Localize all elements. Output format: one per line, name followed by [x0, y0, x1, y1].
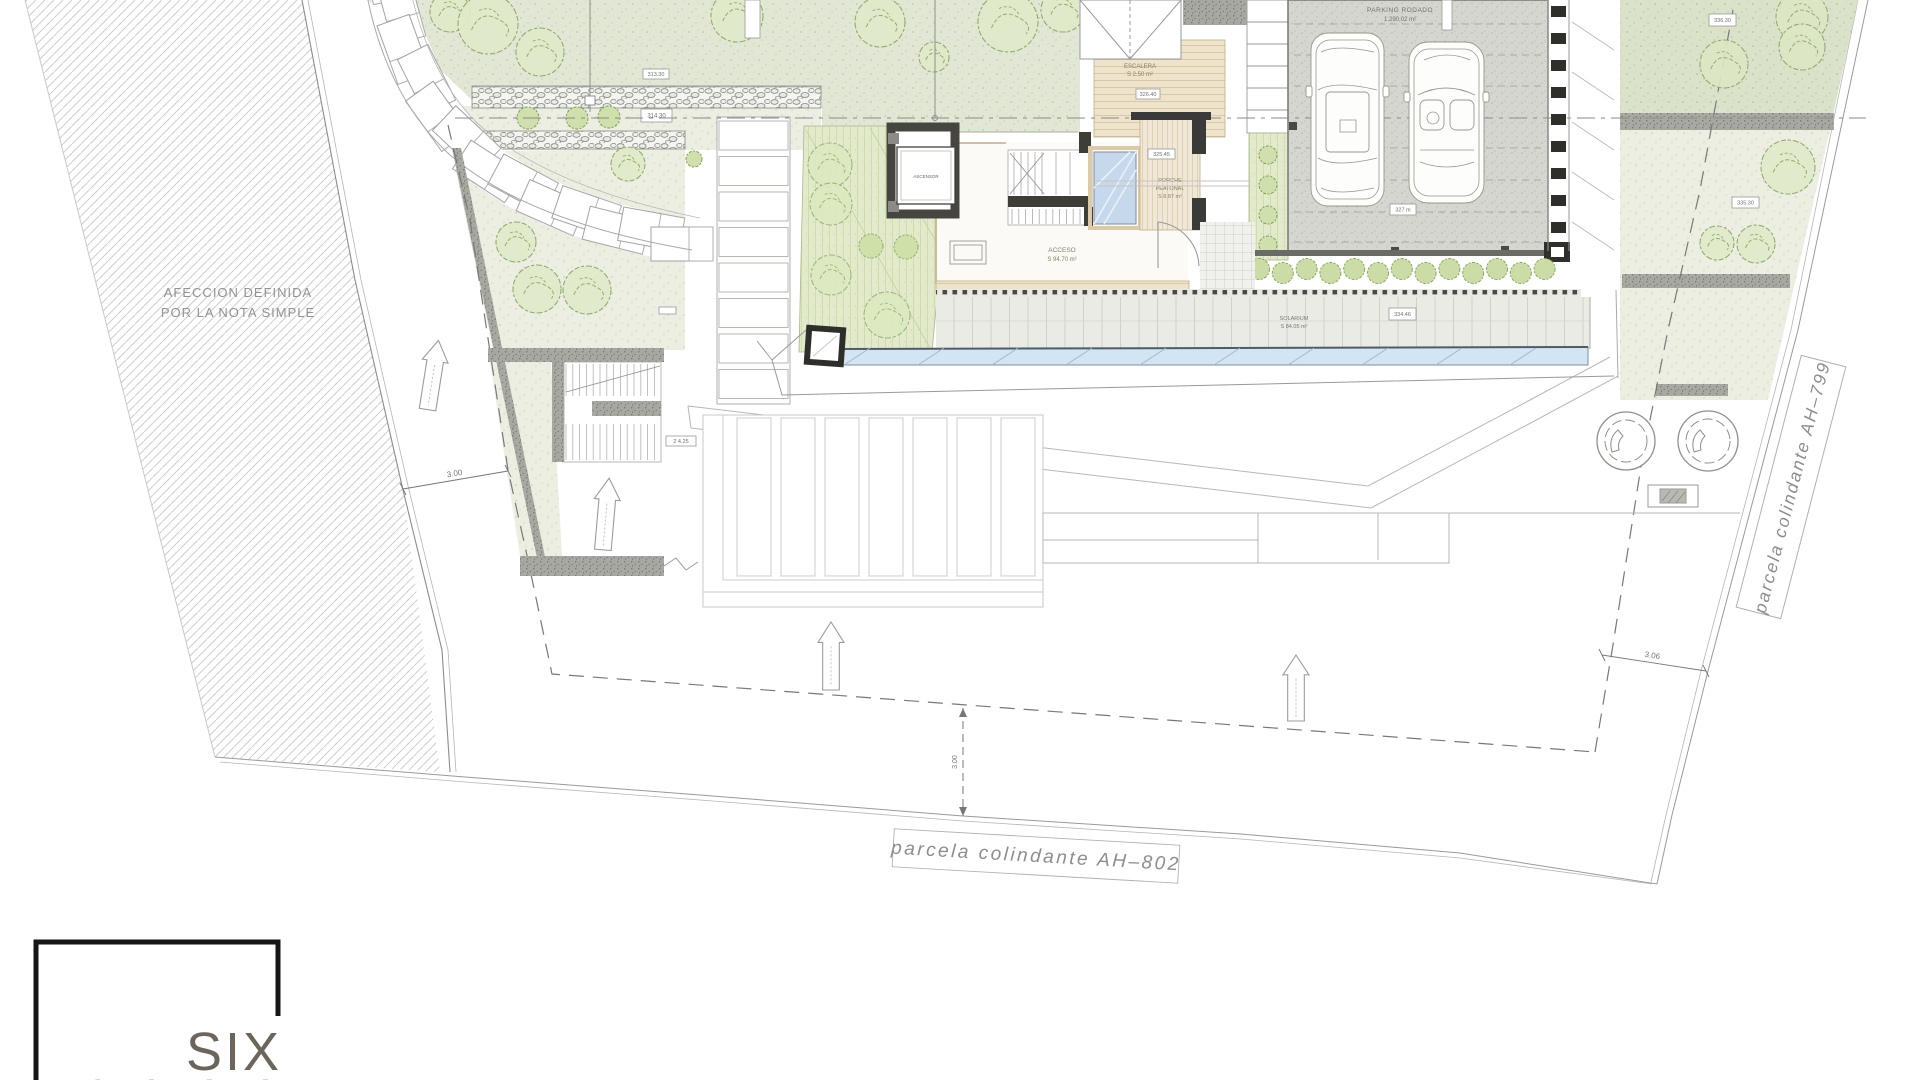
svg-text:326.40: 326.40 — [1140, 92, 1157, 98]
svg-text:POR LA NOTA SIMPLE: POR LA NOTA SIMPLE — [161, 305, 315, 320]
svg-text:314.30: 314.30 — [647, 114, 666, 120]
svg-text:336.30: 336.30 — [1714, 18, 1731, 24]
svg-text:S 94.70 m²: S 94.70 m² — [1047, 257, 1076, 263]
svg-text:PARKING RODADO: PARKING RODADO — [1367, 7, 1433, 14]
svg-text:335.30: 335.30 — [1737, 200, 1754, 206]
svg-text:3.06: 3.06 — [1644, 650, 1661, 661]
svg-text:3.00: 3.00 — [952, 755, 959, 769]
svg-text:S 84.05 m²: S 84.05 m² — [1281, 324, 1308, 330]
svg-text:ACCESO: ACCESO — [1048, 247, 1075, 254]
svg-text:PEATONAL: PEATONAL — [1156, 186, 1185, 192]
svg-text:AFECCION DEFINIDA: AFECCION DEFINIDA — [164, 285, 312, 300]
svg-text:3.00: 3.00 — [446, 468, 463, 479]
svg-text:325.45: 325.45 — [1153, 152, 1170, 158]
svg-text:ASCENSOR: ASCENSOR — [913, 174, 939, 179]
svg-text:334.46: 334.46 — [1394, 312, 1411, 318]
svg-text:2 4.25: 2 4.25 — [673, 439, 688, 445]
svg-text:313.30: 313.30 — [648, 72, 665, 78]
svg-text:ESCALERA: ESCALERA — [1124, 64, 1156, 70]
svg-text:327 m: 327 m — [1395, 207, 1411, 213]
svg-text:ATALAYA: ATALAYA — [83, 1071, 282, 1080]
svg-text:1.290,02 m²: 1.290,02 m² — [1384, 17, 1416, 23]
svg-text:S 8.87 m²: S 8.87 m² — [1158, 194, 1182, 200]
svg-text:SOLARIUM: SOLARIUM — [1280, 316, 1309, 322]
svg-text:S 2.50 m²: S 2.50 m² — [1127, 72, 1153, 78]
